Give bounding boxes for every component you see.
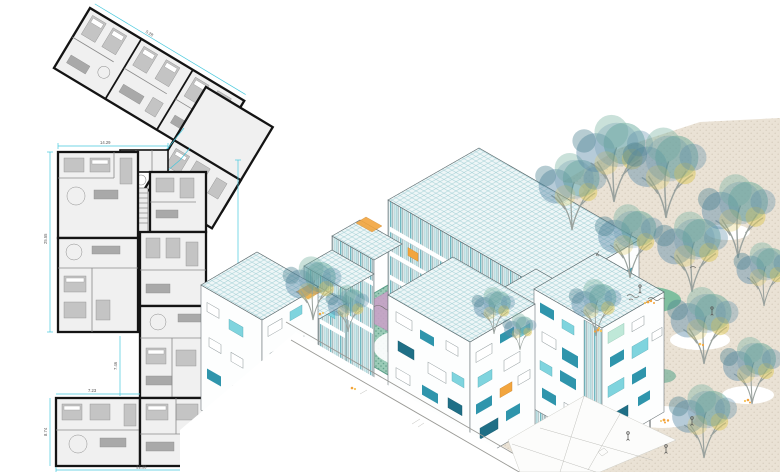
axonometric-view [0, 0, 780, 472]
architectural-sheet: 5.28 [0, 0, 780, 472]
